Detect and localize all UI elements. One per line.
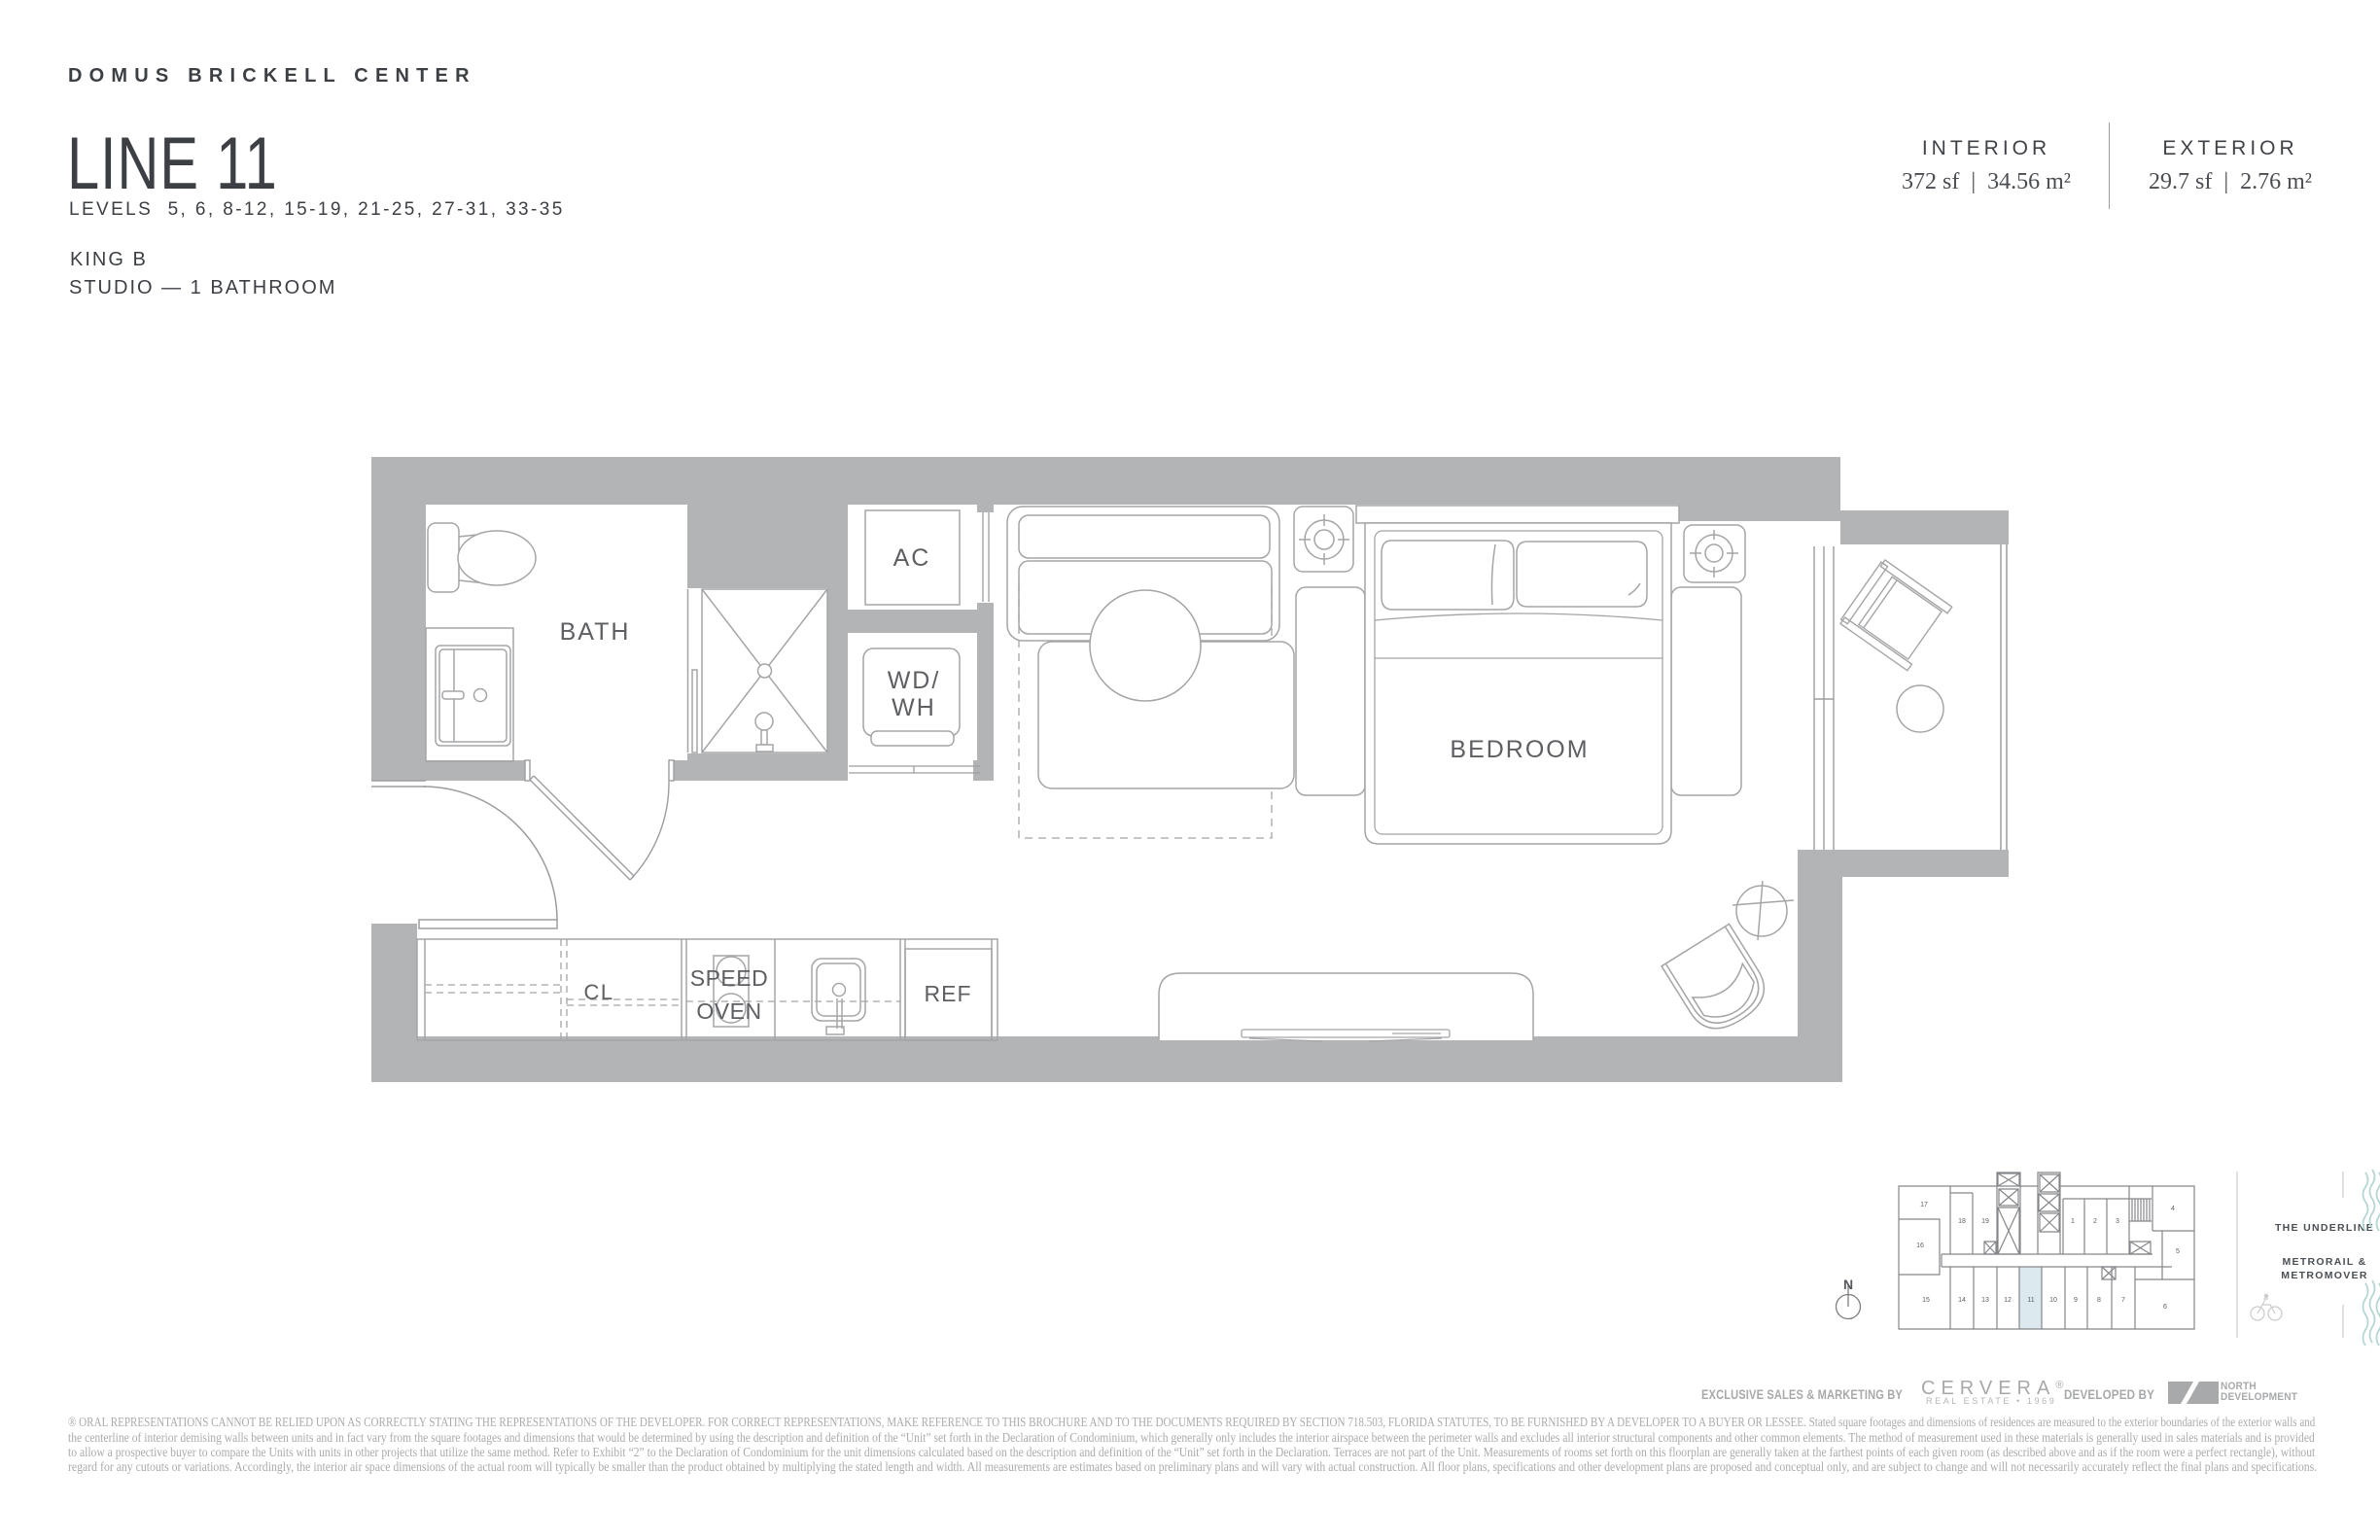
svg-text:10: 10 [2049,1297,2057,1304]
svg-text:14: 14 [1958,1297,1966,1304]
svg-text:BATH: BATH [560,618,631,646]
svg-text:3: 3 [2116,1218,2119,1225]
svg-text:16: 16 [1916,1242,1924,1249]
svg-text:1: 1 [2071,1218,2075,1225]
svg-text:METROMOVER: METROMOVER [2281,1270,2367,1281]
svg-text:15: 15 [1922,1297,1930,1304]
svg-text:12: 12 [2004,1297,2012,1304]
svg-text:19: 19 [1981,1218,1989,1225]
svg-text:9: 9 [2074,1297,2078,1304]
svg-text:18: 18 [1958,1218,1966,1225]
svg-text:WH: WH [892,694,936,721]
svg-text:REF: REF [925,981,972,1006]
svg-text:SPEED: SPEED [690,965,768,991]
svg-text:6: 6 [2163,1304,2167,1311]
svg-text:THE UNDERLINE: THE UNDERLINE [2275,1222,2374,1234]
svg-text:BEDROOM: BEDROOM [1450,736,1589,763]
svg-text:11: 11 [2027,1297,2034,1304]
svg-text:13: 13 [1981,1297,1989,1304]
svg-text:N: N [1843,1277,1853,1292]
svg-text:AC: AC [893,544,931,572]
svg-text:METRORAIL &: METRORAIL & [2282,1256,2366,1268]
svg-text:WD/: WD/ [888,667,941,694]
svg-text:7: 7 [2121,1297,2125,1304]
svg-text:CL: CL [583,980,613,1004]
svg-text:2: 2 [2093,1218,2097,1225]
svg-text:5: 5 [2176,1248,2180,1255]
svg-text:OVEN: OVEN [696,998,761,1024]
svg-text:4: 4 [2171,1206,2175,1212]
svg-text:17: 17 [1920,1202,1928,1208]
svg-text:8: 8 [2097,1297,2101,1304]
